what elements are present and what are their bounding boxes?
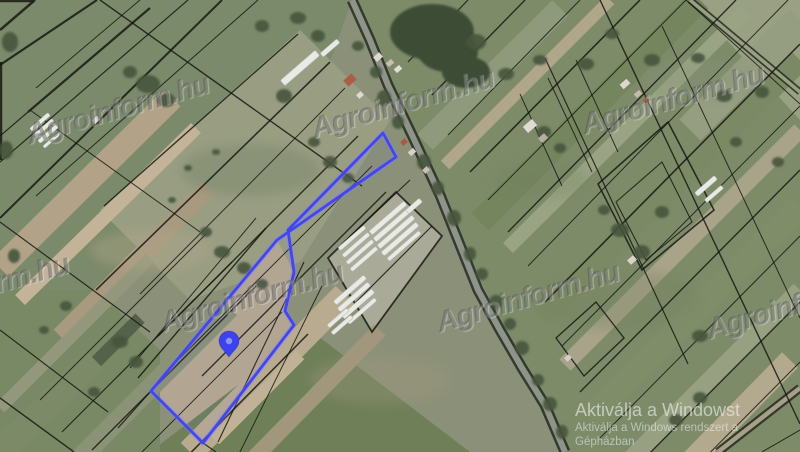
tree [157, 93, 175, 107]
tree [88, 387, 100, 397]
tree [532, 374, 544, 386]
tree [466, 34, 486, 50]
tree [644, 54, 660, 66]
tree [352, 41, 364, 51]
tree [692, 330, 708, 342]
tree [669, 414, 683, 426]
terrain-mottle [540, 270, 700, 330]
tree [533, 55, 547, 65]
tree [39, 326, 49, 334]
tree [2, 32, 18, 52]
tree [772, 157, 784, 167]
tree [311, 30, 325, 42]
terrain-layer [0, 0, 800, 452]
tree [276, 89, 292, 103]
tree [498, 68, 514, 80]
tree [60, 301, 72, 311]
tree [123, 66, 137, 78]
tree [611, 223, 629, 237]
tree [168, 197, 176, 203]
tree [605, 29, 619, 39]
tree [323, 156, 337, 168]
map-pin-center [226, 338, 232, 344]
tree [255, 20, 269, 32]
tree [129, 356, 143, 368]
tree [136, 75, 160, 93]
map-screenshot: Agroinform.huAgroinform.huAgroinform.huA… [0, 0, 800, 452]
tree [184, 165, 192, 171]
tree [730, 137, 742, 147]
tree [476, 268, 488, 280]
tree [655, 206, 669, 218]
tree [447, 210, 461, 226]
tree [504, 318, 516, 330]
tree [212, 149, 220, 155]
tree [370, 66, 382, 78]
tree [716, 90, 732, 102]
tree [578, 58, 594, 70]
terrain-mottle [310, 356, 450, 404]
tree [489, 295, 503, 309]
tree [634, 245, 650, 259]
tree [515, 341, 529, 355]
tree [112, 336, 128, 348]
tree [755, 86, 769, 98]
tree [691, 53, 705, 63]
tree [432, 181, 444, 195]
tree [554, 143, 566, 153]
tree [308, 137, 320, 147]
tree [417, 154, 431, 170]
terrain-mottle [490, 160, 590, 200]
terrain-mottle [90, 230, 210, 270]
tree [598, 205, 610, 215]
tree [464, 247, 476, 261]
tree [377, 90, 391, 106]
tree [556, 425, 568, 439]
tree [200, 227, 212, 237]
tree [8, 249, 20, 263]
tree [290, 12, 306, 24]
satellite-map[interactable] [0, 0, 800, 452]
tree [392, 115, 404, 129]
tree [543, 397, 557, 411]
tree [693, 392, 707, 404]
tree [214, 246, 230, 258]
